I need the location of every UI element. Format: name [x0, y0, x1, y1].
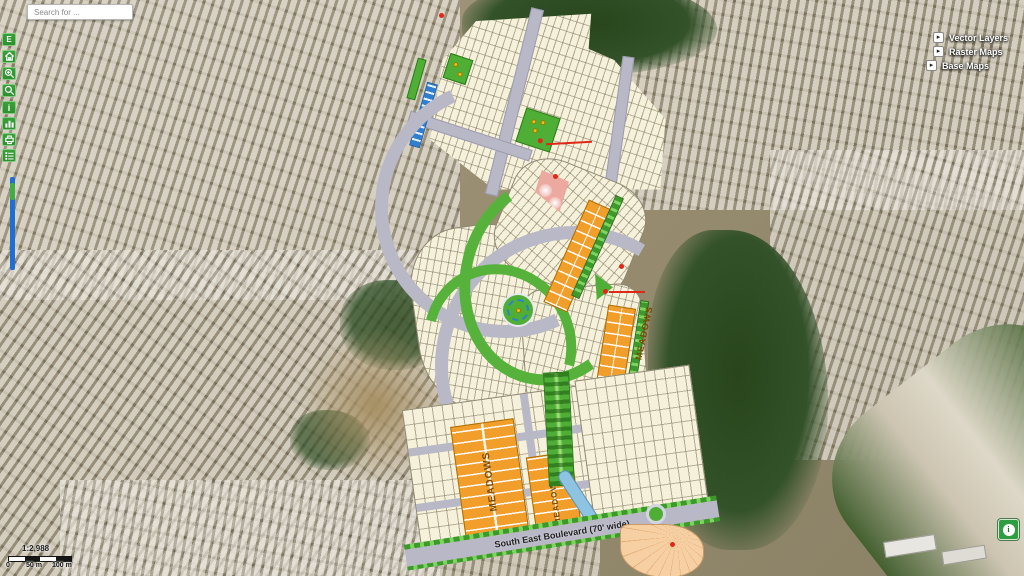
printer-icon	[4, 134, 15, 145]
layer-group-vector[interactable]: ▸ Vector Layers	[933, 32, 1008, 43]
scale-bar-segment	[25, 557, 41, 561]
map-marker[interactable]	[553, 174, 558, 179]
fountain	[539, 184, 552, 197]
scale-ratio-text: 1:2,988	[22, 544, 49, 553]
zoom-out-box-button[interactable]	[2, 84, 16, 97]
roundabout-park	[501, 293, 535, 327]
legend-list-icon	[4, 150, 15, 161]
map-marker[interactable]	[670, 542, 675, 547]
info-icon: i	[8, 103, 11, 113]
scale-label-100: 100 m	[52, 562, 72, 569]
roundabout	[646, 504, 666, 524]
map-marker[interactable]	[619, 264, 624, 269]
letter-e-icon: E	[6, 35, 11, 44]
zoom-in-box-button[interactable]	[2, 67, 16, 80]
zoom-slider-knob[interactable]	[10, 183, 15, 200]
magnifier-plus-icon	[4, 68, 15, 79]
map-marker[interactable]	[603, 289, 608, 294]
circle-i-icon: i	[1003, 524, 1015, 536]
identify-button[interactable]: i	[2, 101, 16, 114]
print-map-button[interactable]	[2, 133, 16, 146]
satellite-city-area	[770, 150, 1024, 460]
home-icon	[4, 51, 15, 62]
vegetation-area	[290, 410, 370, 470]
measure-button[interactable]	[2, 117, 16, 130]
layer-group-label[interactable]: Base Maps	[942, 61, 989, 71]
map-marker[interactable]	[439, 13, 444, 18]
industrial-building	[941, 545, 987, 566]
home-extent-button[interactable]	[2, 50, 16, 63]
roundabout-center	[516, 308, 521, 313]
chevron-right-icon[interactable]: ▸	[933, 46, 944, 57]
scale-bar-segment	[56, 557, 72, 561]
scale-bar-segment	[40, 557, 56, 561]
layer-group-label[interactable]: Raster Maps	[949, 47, 1003, 57]
industrial-building	[883, 534, 937, 558]
chevron-right-icon[interactable]: ▸	[933, 32, 944, 43]
scale-label-0: 0	[6, 562, 10, 569]
map-canvas[interactable]: MEADOWS MEADOWS MEADOWS South East Boule…	[0, 0, 1024, 576]
magnifier-icon	[4, 85, 15, 96]
measure-bars-icon	[4, 118, 15, 129]
chevron-right-icon[interactable]: ▸	[926, 60, 937, 71]
loop-interchange	[620, 524, 704, 576]
search-input[interactable]	[27, 4, 133, 20]
scale-bar-segment	[9, 557, 25, 561]
info-button[interactable]: i	[998, 519, 1019, 540]
masterplan-bottom-sector: MEADOWS MEADOWS South East Boulevard (70…	[408, 372, 718, 576]
tree-dot	[457, 71, 463, 77]
layer-group-label[interactable]: Vector Layers	[949, 33, 1008, 43]
editor-tool-button[interactable]: E	[2, 33, 16, 46]
layer-group-base[interactable]: ▸ Base Maps	[926, 60, 989, 71]
scale-label-50: 50 m	[26, 562, 42, 569]
satellite-city-area	[0, 250, 440, 576]
layer-group-raster[interactable]: ▸ Raster Maps	[933, 46, 1003, 57]
tree-dot	[453, 61, 459, 67]
area-label: MEADOWS	[480, 450, 499, 511]
river-bed	[800, 291, 1024, 576]
annotation-line	[609, 291, 645, 293]
legend-button[interactable]	[2, 149, 16, 162]
